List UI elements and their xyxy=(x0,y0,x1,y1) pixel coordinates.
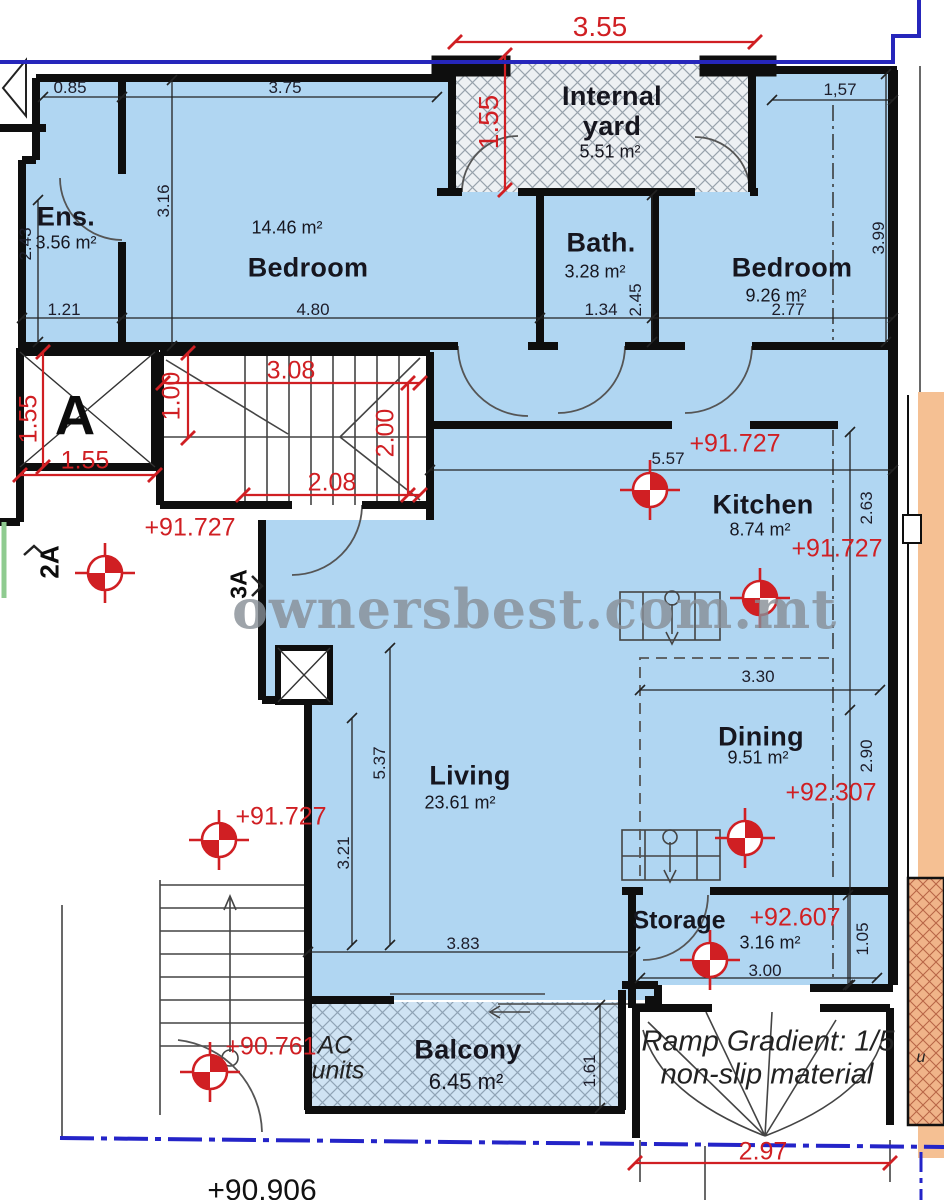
dim-105: 1.05 xyxy=(853,922,873,955)
dim-383: 3.83 xyxy=(446,934,479,954)
dim-321: 3.21 xyxy=(334,836,354,869)
room-label-ensuite: Ens. xyxy=(37,202,95,233)
dim-557: 5.57 xyxy=(651,449,684,469)
dim-red-200: 2.00 xyxy=(372,409,401,458)
room-area-bedroom-left: 14.46 m² xyxy=(251,218,322,239)
dim-red-155-lift-v: 1.55 xyxy=(15,395,44,444)
room-area-storage: 3.16 m² xyxy=(739,933,800,954)
level-stairs: +90.761 xyxy=(225,1033,316,1062)
dim-277: 2.77 xyxy=(771,300,804,320)
dim-245: 2.45 xyxy=(626,283,646,316)
room-label-kitchen: Kitchen xyxy=(712,490,813,521)
ac-units-note-line2: units xyxy=(312,1057,365,1086)
adjacent-hatched-block xyxy=(908,878,944,1125)
dim-red-297: 2.97 xyxy=(739,1138,788,1167)
room-area-ensuite: 3.56 m² xyxy=(35,233,96,254)
dim-red-355: 3.55 xyxy=(573,11,628,43)
duct-shaft xyxy=(278,648,330,702)
dim-263: 2.63 xyxy=(857,491,877,524)
site-boundary-bottom xyxy=(60,1138,944,1147)
partial-text-u: u xyxy=(917,1049,926,1067)
ramp-note-line1: Ramp Gradient: 1/5 xyxy=(641,1026,894,1059)
room-area-internal-yard: 5.51 m² xyxy=(579,142,640,163)
room-label-storage: Storage xyxy=(632,907,725,936)
dim-330: 3.30 xyxy=(741,667,774,687)
site-boundary-top xyxy=(0,0,919,62)
dim-290: 2.90 xyxy=(857,739,877,772)
dim-537: 5.37 xyxy=(370,746,390,779)
section-marker-2a: 2A xyxy=(35,545,66,578)
dim-red-155-yard: 1.55 xyxy=(473,95,505,150)
dim-316: 3.16 xyxy=(154,184,174,217)
dim-red-208: 2.08 xyxy=(308,469,357,498)
ramp-note-line2: non-slip material xyxy=(661,1059,874,1092)
dim-375: 3.75 xyxy=(268,78,301,98)
room-area-kitchen: 8.74 m² xyxy=(729,520,790,541)
dim-243: 2.43 xyxy=(16,227,36,260)
dim-red-308: 3.08 xyxy=(267,357,316,386)
entry-arrow-icon xyxy=(3,60,26,116)
room-label-living: Living xyxy=(429,761,510,792)
room-label-bath: Bath. xyxy=(567,228,636,259)
level-dining: +92.307 xyxy=(785,779,876,808)
watermark: ownersbest.com.mt xyxy=(232,577,837,641)
room-label-bedroom-left: Bedroom xyxy=(248,253,369,284)
dim-161: 1.61 xyxy=(580,1054,600,1087)
level-hall: +91.727 xyxy=(144,514,235,543)
dim-134: 1.34 xyxy=(584,300,617,320)
dim-red-100: 1.00 xyxy=(158,372,187,421)
dim-480: 4.80 xyxy=(296,300,329,320)
dim-121: 1.21 xyxy=(47,300,80,320)
dim-157: 1,57 xyxy=(823,80,856,100)
dim-085: 0.85 xyxy=(53,78,86,98)
room-label-balcony: Balcony xyxy=(414,1035,521,1066)
level-living: +91.727 xyxy=(235,803,326,832)
level-kitchen-b: +91.727 xyxy=(791,535,882,564)
level-storage: +92.607 xyxy=(749,904,840,933)
level-street: +90.906 xyxy=(207,1174,316,1200)
floor-plan-page: Internal yard 5.51 m² Ens. 3.56 m² 14.46… xyxy=(0,0,944,1200)
room-area-balcony: 6.45 m² xyxy=(429,1069,504,1095)
room-area-bath: 3.28 m² xyxy=(564,262,625,283)
room-area-living: 23.61 m² xyxy=(424,793,495,814)
room-area-dining: 9.51 m² xyxy=(727,748,788,769)
dim-red-155-lift-h: 1.55 xyxy=(61,447,110,476)
room-label-internal-yard: Internal yard xyxy=(537,81,687,141)
level-kitchen-a: +91.727 xyxy=(689,430,780,459)
dim-399: 3.99 xyxy=(869,221,889,254)
room-label-bedroom-right: Bedroom xyxy=(732,253,853,284)
dim-300: 3.00 xyxy=(748,961,781,981)
section-marker-a: A xyxy=(55,383,95,448)
